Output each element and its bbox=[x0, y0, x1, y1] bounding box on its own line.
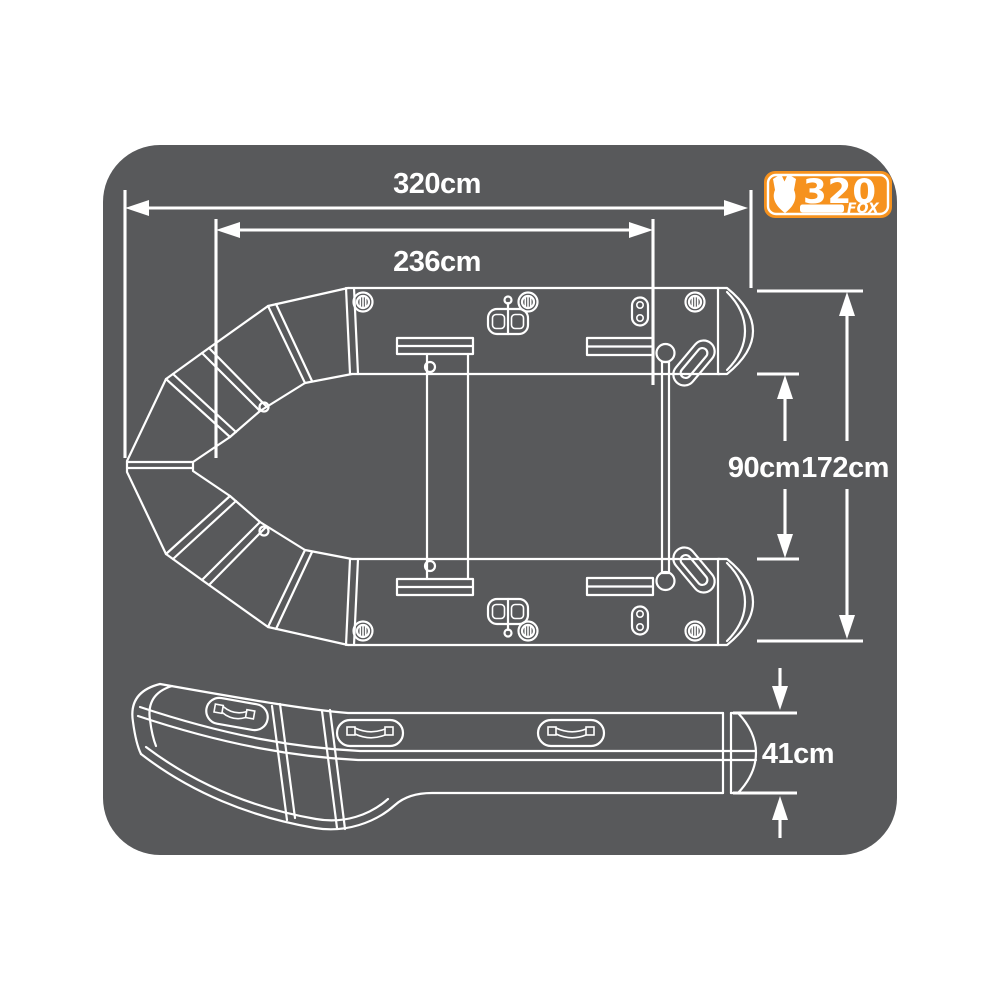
overall-width-label: 172cm bbox=[801, 452, 889, 484]
diagram-canvas: 320cm 236cm 90cm 172cm 41cm 320 FOX bbox=[0, 0, 1000, 1000]
valve-icon bbox=[354, 293, 373, 312]
internal-width-label: 90cm bbox=[728, 452, 800, 484]
valve-icon bbox=[354, 622, 373, 641]
fox-badge: 320 FOX bbox=[764, 171, 892, 218]
internal-length-label: 236cm bbox=[393, 246, 481, 278]
valve-icon bbox=[686, 622, 705, 641]
tube-height-label: 41cm bbox=[762, 738, 834, 770]
boat-spec-diagram: 320cm 236cm 90cm 172cm 41cm 320 FOX bbox=[0, 0, 1000, 1000]
badge-brand: FOX bbox=[847, 201, 880, 217]
overall-length-label: 320cm bbox=[393, 168, 481, 200]
badge-bar bbox=[800, 205, 844, 213]
valve-icon bbox=[686, 293, 705, 312]
